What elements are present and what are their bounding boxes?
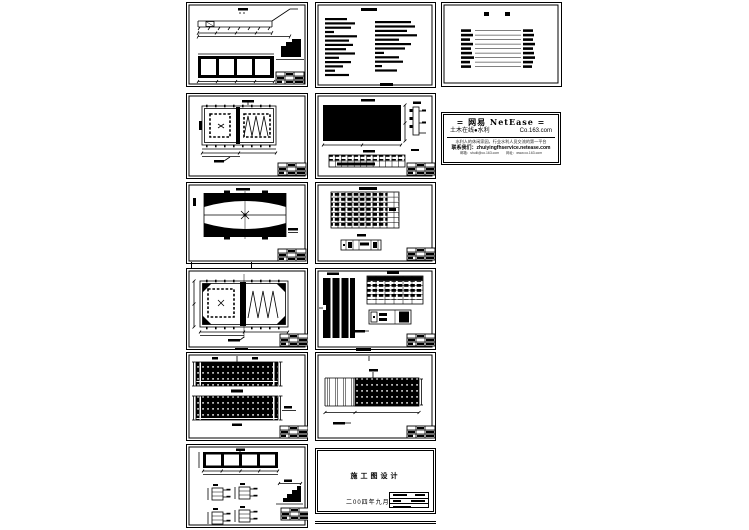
plan-view-1-drawing	[186, 93, 308, 179]
title-block	[407, 248, 435, 260]
hatched-slab	[323, 105, 401, 141]
sheet-wall-section-schedule	[315, 268, 436, 350]
sheet-rebar-schedule	[315, 182, 436, 264]
sheet-reinforcement-strips	[186, 352, 308, 441]
title-block	[407, 334, 435, 346]
sheet-slab-reinforcement	[315, 93, 436, 179]
details-drawing	[186, 444, 308, 528]
stamp-divider	[447, 137, 555, 138]
netease-contact: 联系我们：zhuiyingfhservice.netease.com	[444, 145, 558, 151]
index-rows	[461, 29, 535, 68]
title-block	[278, 249, 306, 261]
longitudinal-section-drawing	[186, 2, 308, 87]
notes-left-column	[325, 18, 357, 76]
drawing-index-table	[441, 2, 562, 87]
netease-domain: Co.163.com	[520, 128, 552, 135]
step-detail	[276, 480, 303, 505]
title-block	[280, 426, 308, 438]
section-view	[197, 8, 298, 39]
rebar-table	[331, 192, 399, 228]
detail-box-4	[235, 506, 258, 522]
schedule-table	[329, 150, 405, 167]
strip-2	[192, 396, 283, 420]
curved-plan	[204, 191, 286, 240]
strip-1	[192, 362, 283, 386]
plan-view	[200, 280, 288, 330]
title-block	[278, 163, 306, 175]
schedule-table	[367, 272, 423, 305]
registration-mark	[235, 348, 248, 350]
step-detail	[276, 39, 304, 60]
reinforcement-strips-drawing	[186, 352, 308, 441]
curved-roof-plan-drawing	[186, 182, 308, 264]
centerline-overflow-mark	[251, 262, 252, 269]
drawing-collage-page: { "canvas": { "background": "#ffffff", "…	[0, 0, 749, 530]
strip-detail	[341, 240, 381, 250]
plan-view	[199, 105, 276, 148]
slab-reinforcement-drawing	[315, 93, 436, 179]
bar-detail	[410, 102, 427, 152]
dimension-lines	[201, 149, 277, 163]
centerline-overflow-mark	[191, 262, 192, 269]
wall-section	[319, 273, 355, 339]
title-block	[276, 72, 304, 84]
sheet-plan-view-2	[186, 268, 308, 350]
title-block	[407, 163, 435, 175]
section-view	[325, 369, 423, 406]
wall-section-schedule-drawing	[315, 268, 436, 350]
rebar-schedule-drawing	[315, 182, 436, 264]
cover-title-block	[389, 492, 429, 508]
netease-channel: 土木在线●水利	[450, 128, 490, 135]
sheet-notes	[315, 2, 436, 88]
title-block	[281, 508, 308, 520]
sheet-longitudinal-section	[186, 2, 308, 87]
netease-stamp-inner: = 网易 NetEase = 土木在线●水利 Co.163.com 水利人的休闲…	[443, 114, 559, 163]
cover-title: 施工图设计	[318, 471, 433, 481]
next-sheet-edge	[315, 521, 436, 524]
dimension-lines	[324, 411, 421, 414]
plan-view-2-drawing	[186, 268, 308, 350]
sheet-curved-roof-plan	[186, 182, 308, 264]
netease-title: = 网易 NetEase =	[444, 117, 558, 127]
elevation-view	[199, 452, 279, 475]
registration-mark	[356, 348, 371, 351]
notes-drawing	[315, 2, 436, 88]
tank-section-drawing	[315, 352, 436, 441]
detail-box-1	[208, 484, 231, 500]
netease-stamp: = 网易 NetEase = 土木在线●水利 Co.163.com 水利人的休闲…	[441, 112, 561, 165]
detail-box-2	[235, 483, 258, 499]
title-block	[280, 334, 308, 346]
sheet-cover: 施工图设计 二00四年九月	[315, 448, 436, 514]
elevation-view	[197, 54, 275, 83]
sheet-drawing-index	[441, 2, 562, 87]
notes-right-column	[375, 21, 417, 72]
netease-footer: 邮箱：shuili@co.163.com 网址：www.co.163.com	[450, 151, 553, 156]
cover-inner-border: 施工图设计 二00四年九月	[317, 450, 434, 512]
registration-mark	[380, 83, 393, 86]
sheet-tank-section	[315, 352, 436, 441]
netease-slogan: 水利人的休闲家园，行业水利人员交流的第一平台	[449, 139, 554, 145]
notes-title-bar	[361, 8, 377, 11]
title-block	[407, 426, 435, 438]
small-detail	[369, 310, 411, 324]
sheet-plan-view-1	[186, 93, 308, 179]
sheet-details	[186, 444, 308, 528]
cover-date: 二00四年九月	[346, 497, 390, 506]
detail-box-3	[208, 508, 231, 524]
cover-title-block-row	[390, 504, 428, 509]
